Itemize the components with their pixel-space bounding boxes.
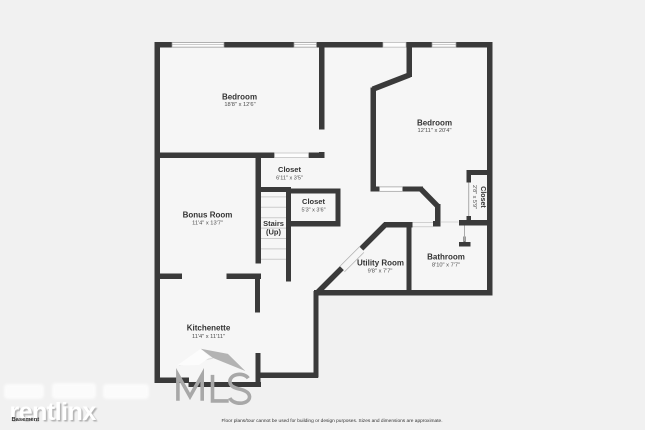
svg-text:Bonus Room: Bonus Room bbox=[183, 210, 233, 219]
svg-text:Floor plans/tour cannot be use: Floor plans/tour cannot be used for buil… bbox=[221, 418, 442, 424]
svg-text:Utility Room: Utility Room bbox=[357, 259, 404, 268]
svg-text:11'4" x 13'7": 11'4" x 13'7" bbox=[192, 220, 223, 226]
svg-text:Closet: Closet bbox=[479, 186, 486, 208]
svg-text:9'8" x 7'7": 9'8" x 7'7" bbox=[368, 269, 393, 275]
svg-text:11'4" x 11'11": 11'4" x 11'11" bbox=[192, 334, 225, 340]
svg-text:6'11" x 3'5": 6'11" x 3'5" bbox=[276, 175, 303, 181]
svg-text:Kitchenette: Kitchenette bbox=[187, 324, 231, 333]
svg-text:Bedroom: Bedroom bbox=[222, 93, 257, 102]
svg-text:18'8" x 12'6": 18'8" x 12'6" bbox=[224, 102, 255, 108]
svg-text:(Up): (Up) bbox=[266, 228, 281, 237]
svg-text:Bathroom: Bathroom bbox=[427, 253, 465, 262]
svg-text:Closet: Closet bbox=[302, 197, 325, 206]
svg-text:5'3" x 3'6": 5'3" x 3'6" bbox=[301, 208, 325, 214]
svg-text:Bedroom: Bedroom bbox=[417, 119, 452, 128]
svg-text:2'8" x 5'9": 2'8" x 5'9" bbox=[471, 185, 477, 209]
svg-text:12'11" x 20'4": 12'11" x 20'4" bbox=[418, 128, 452, 134]
svg-text:Basement: Basement bbox=[12, 417, 40, 423]
svg-text:8'10" x 7'7": 8'10" x 7'7" bbox=[432, 263, 460, 269]
svg-text:Closet: Closet bbox=[278, 165, 301, 174]
